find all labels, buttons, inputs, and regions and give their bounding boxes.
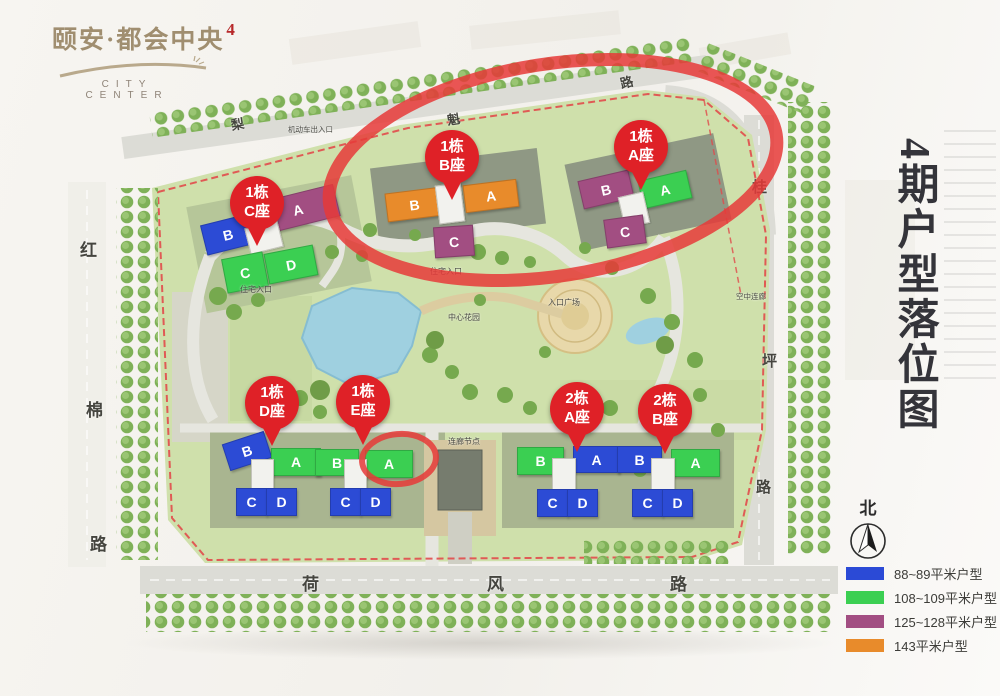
label-residence-entry: 住宅入口: [430, 266, 462, 277]
balloon-line2: A座: [628, 147, 654, 166]
building-1A-C: C: [603, 214, 647, 248]
brand-seal: 4: [226, 20, 235, 40]
balloon-tail: [247, 226, 267, 246]
balloon-1C: 1栋C座: [230, 176, 284, 230]
faint-background-text: [944, 130, 996, 380]
balloon-tail: [567, 432, 587, 452]
balloon-tail: [655, 434, 675, 454]
balloon-line2: E座: [350, 402, 375, 421]
legend-item: 143平米户型: [846, 638, 997, 652]
balloon-line1: 2栋: [565, 390, 588, 409]
legend-label: 108~109平米户型: [894, 588, 997, 607]
label-vehicle-entry: 机动车出入口: [288, 124, 333, 135]
legend-swatch-purple: [846, 615, 884, 628]
balloon-line2: C座: [244, 203, 270, 222]
site-plan-page: B A C D B A C B A C B A C D B A C D B A …: [0, 0, 1000, 696]
legend-label: 143平米户型: [894, 636, 968, 655]
balloon-line1: 1栋: [440, 138, 463, 157]
balloon-1A: 1栋A座: [614, 120, 668, 174]
building-2B-D: D: [662, 489, 693, 517]
legend-item: 88~89平米户型: [846, 566, 997, 580]
balloon-line1: 1栋: [245, 184, 268, 203]
building-1B-C: C: [433, 225, 475, 259]
road-right-char: 坪: [762, 350, 777, 371]
balloon-line1: 1栋: [351, 383, 374, 402]
building-2A-C: C: [537, 489, 568, 517]
balloon-1E: 1栋E座: [336, 375, 390, 429]
label-residence-entry: 住宅入口: [240, 284, 272, 295]
balloon-tail: [442, 180, 462, 200]
label-corridor-node: 连廊节点: [448, 436, 480, 447]
building-1D-core: [251, 459, 274, 490]
legend-label: 125~128平米户型: [894, 612, 997, 631]
logo-city: CITY: [52, 79, 202, 90]
building-1D-D: D: [266, 488, 297, 516]
logo-arc: [58, 56, 208, 78]
label-sky-corridor: 空中连廊: [736, 291, 766, 302]
road-bottom-char: 路: [670, 570, 687, 595]
balloon-line2: D座: [259, 403, 285, 422]
building-2B-core: [651, 458, 675, 491]
north-indicator: 北: [846, 494, 890, 566]
balloon-1D: 1栋D座: [245, 376, 299, 430]
balloon-tail: [262, 426, 282, 446]
building-1D-C: C: [236, 488, 267, 516]
balloon-line1: 1栋: [629, 128, 652, 147]
balloon-2B: 2栋B座: [638, 384, 692, 438]
legend: 88~89平米户型 108~109平米户型 125~128平米户型 143平米户…: [846, 566, 997, 662]
compass-icon: [848, 519, 888, 561]
building-2A-core: [552, 458, 576, 491]
road-top-char: 魁: [446, 108, 462, 129]
road-left-char: 路: [90, 530, 107, 555]
brand-name: 颐安·都会中央: [52, 27, 224, 54]
balloon-line1: 2栋: [653, 392, 676, 411]
building-1E-D: D: [360, 488, 391, 516]
balloon-line1: 1栋: [260, 384, 283, 403]
road-right-char: 桂: [752, 176, 767, 197]
balloon-tail: [631, 170, 651, 190]
logo-center: CENTER: [52, 90, 202, 101]
balloon-2A: 2栋A座: [550, 382, 604, 436]
page-title: 4期户型落位图: [884, 138, 945, 432]
label-central-garden: 中心花园: [448, 312, 480, 323]
legend-item: 108~109平米户型: [846, 590, 997, 604]
balloon-line2: B座: [652, 411, 678, 430]
north-label: 北: [846, 494, 890, 519]
legend-swatch-orange: [846, 639, 884, 652]
road-bottom-char: 荷: [302, 570, 319, 595]
balloon-line2: A座: [564, 409, 590, 428]
building-1E-core: [344, 459, 367, 490]
building-2B-A: A: [671, 449, 720, 477]
legend-label: 88~89平米户型: [894, 564, 983, 583]
balloon-1B: 1栋B座: [425, 130, 479, 184]
road-right-char: 路: [756, 476, 771, 497]
building-1D-A: A: [271, 448, 321, 476]
road-bottom-char: 风: [487, 570, 504, 595]
legend-swatch-blue: [846, 567, 884, 580]
building-2A-D: D: [567, 489, 598, 517]
legend-swatch-green: [846, 591, 884, 604]
balloon-line2: B座: [439, 157, 465, 176]
legend-item: 125~128平米户型: [846, 614, 997, 628]
building-2B-C: C: [632, 489, 663, 517]
balloon-tail: [353, 425, 373, 445]
building-1E-C: C: [330, 488, 361, 516]
road-left-char: 棉: [86, 396, 103, 421]
brand-logo: 颐安·都会中央4 CITY CENTER: [52, 20, 235, 101]
road-left-char: 红: [80, 236, 97, 261]
building-1E-A: A: [365, 450, 413, 478]
label-entry-plaza: 入口广场: [548, 297, 580, 308]
